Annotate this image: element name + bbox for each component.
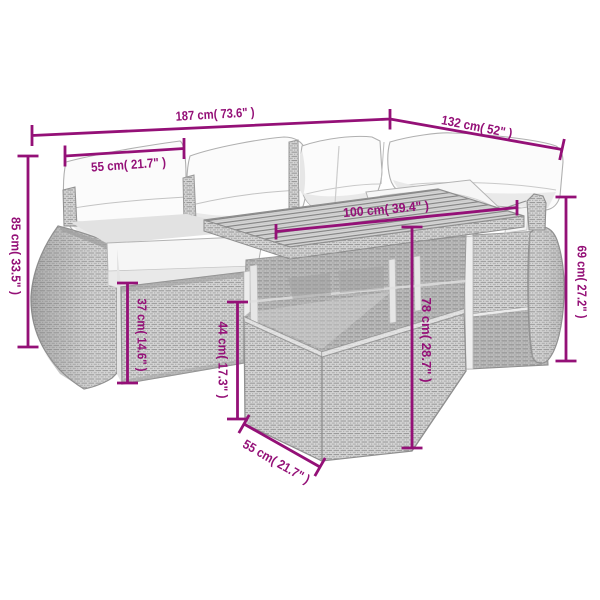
svg-text:37 cm( 14.6" ): 37 cm( 14.6" ) bbox=[135, 299, 150, 372]
svg-text:44 cm( 17.3" ): 44 cm( 17.3" ) bbox=[216, 322, 231, 399]
svg-text:85 cm( 33.5" ): 85 cm( 33.5" ) bbox=[9, 217, 24, 295]
svg-text:69 cm( 27.2" ): 69 cm( 27.2" ) bbox=[575, 246, 590, 319]
svg-text:78 cm( 28.7" ): 78 cm( 28.7" ) bbox=[419, 298, 434, 383]
